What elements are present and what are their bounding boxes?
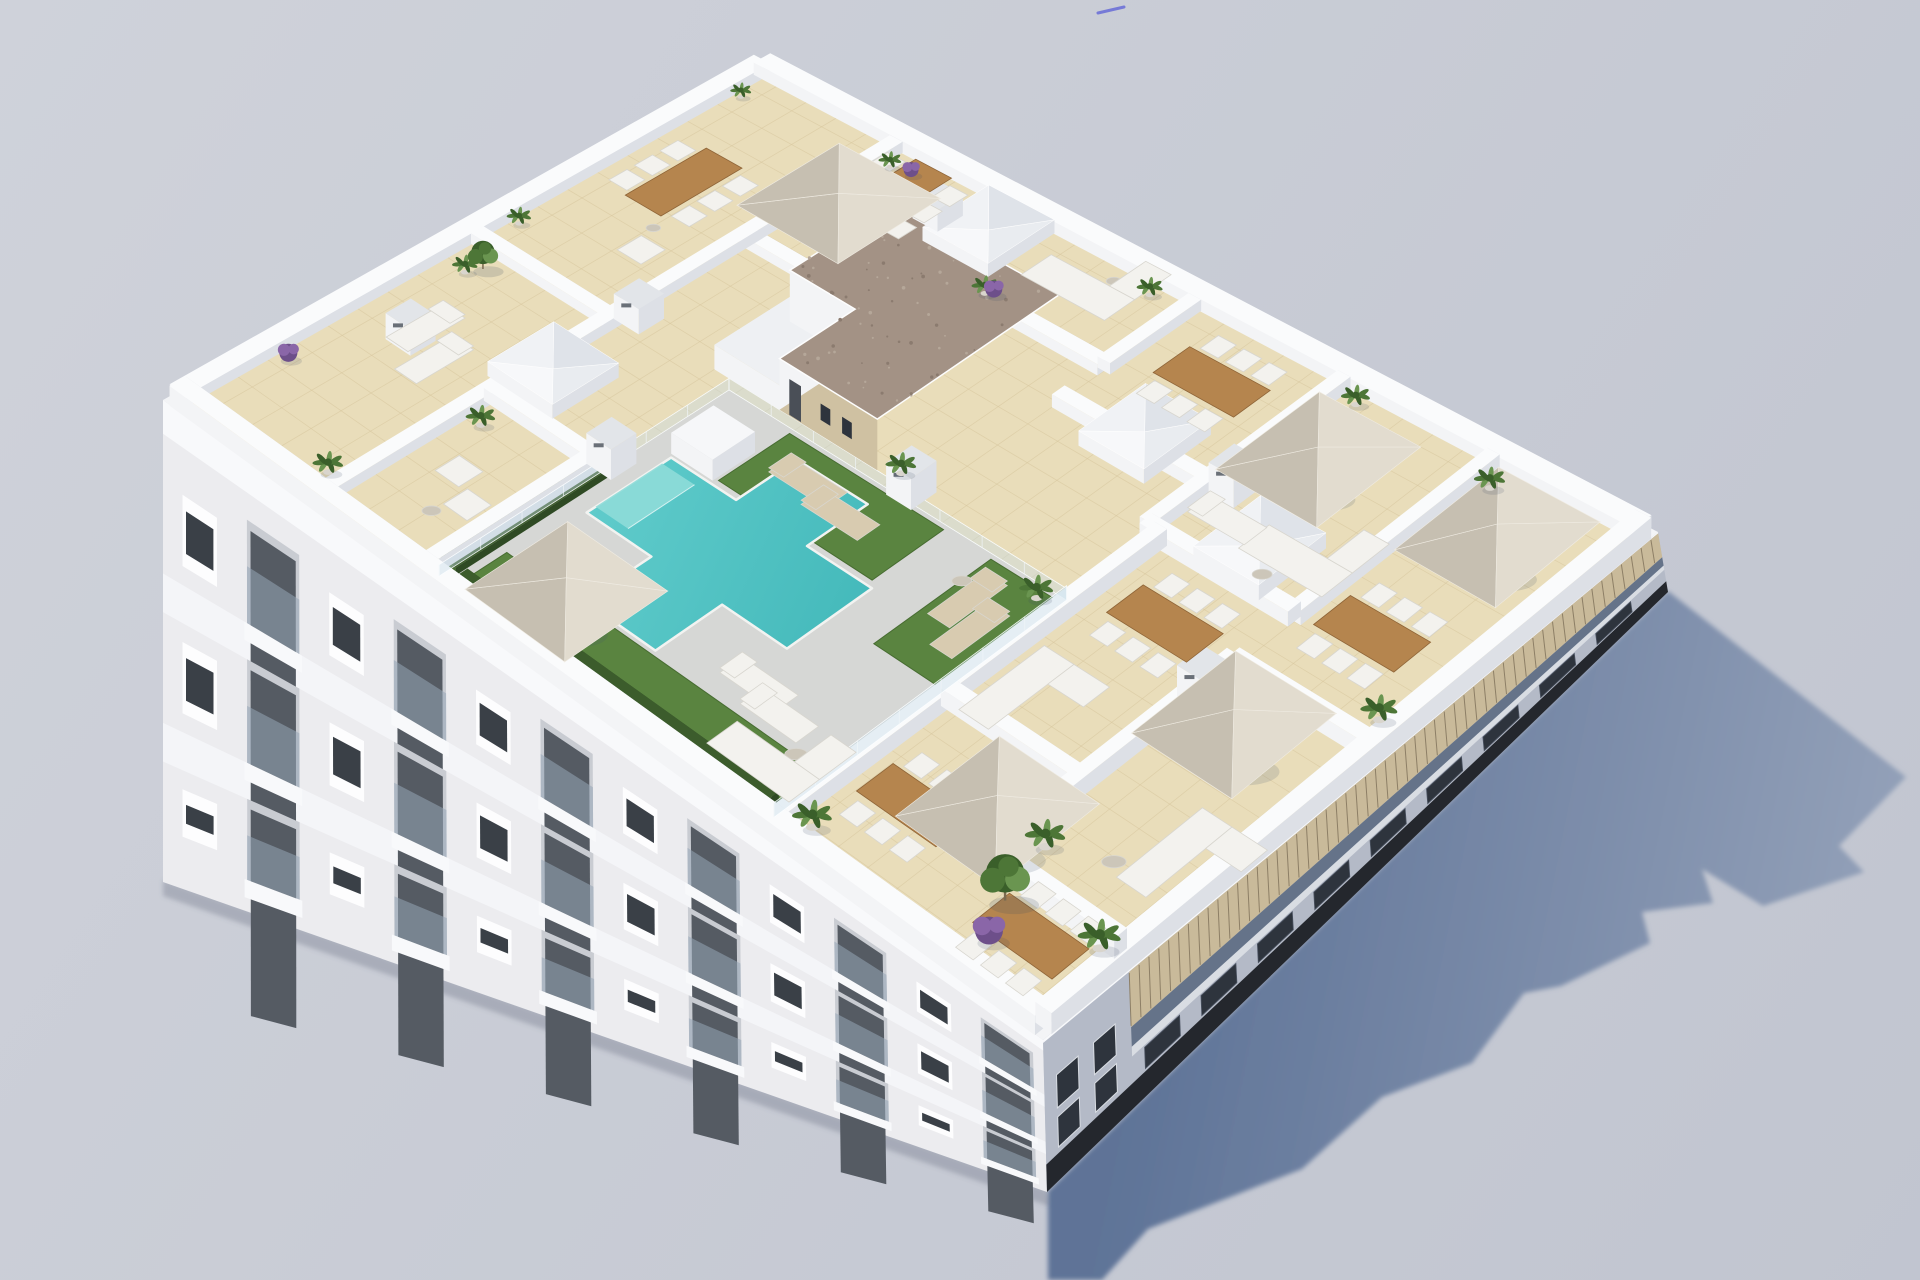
plant-center: [1352, 392, 1359, 399]
gravel-dot: [831, 344, 835, 348]
gravel-dot: [806, 361, 809, 364]
gravel-dot: [868, 289, 870, 291]
gravel-dot: [883, 239, 885, 241]
plant-center: [887, 157, 893, 163]
rooftop-render: [0, 0, 1920, 1280]
chimney-vent: [1184, 675, 1194, 679]
gravel-dot: [876, 276, 878, 278]
bush-blob: [994, 281, 1004, 291]
gravel-dot: [812, 267, 815, 270]
gravel-dot: [935, 323, 938, 326]
gravel-dot: [887, 277, 889, 279]
gravel-dot: [864, 381, 866, 383]
gravel-dot: [928, 246, 932, 250]
plant-center: [477, 412, 484, 419]
gravel-dot: [801, 265, 804, 268]
gravel-dot: [920, 273, 922, 275]
chimney-vent: [393, 323, 403, 327]
bush-blob: [989, 917, 1005, 933]
plant-center: [1041, 829, 1051, 839]
round-table: [1252, 569, 1272, 579]
plant-center: [897, 460, 904, 467]
gravel-dot: [909, 341, 913, 345]
gravel-dot: [863, 387, 865, 389]
plant-center: [1375, 703, 1384, 712]
gravel-dot: [944, 335, 946, 337]
bush-blob: [902, 162, 912, 172]
plant-center: [1486, 474, 1494, 482]
gravel-dot: [888, 367, 890, 369]
gravel-dot: [898, 340, 901, 343]
tree-canopy: [998, 856, 1018, 876]
plant-center: [324, 458, 331, 465]
gravel-dot: [838, 318, 842, 322]
gravel-dot: [886, 335, 888, 337]
gravel-dot: [859, 323, 861, 325]
gravel-dot: [936, 373, 939, 376]
round-table: [422, 506, 441, 516]
gravel-dot: [891, 300, 893, 302]
gravel-dot: [921, 275, 925, 279]
gravel-dot: [999, 275, 1001, 277]
gravel-dot: [803, 353, 806, 356]
gravel-dot: [882, 261, 885, 264]
gravel-dot: [830, 291, 833, 294]
gravel-dot: [845, 296, 848, 299]
gravel-dot: [808, 256, 811, 259]
gravel-dot: [858, 307, 860, 309]
gravel-dot: [938, 347, 941, 350]
gravel-dot: [886, 362, 889, 365]
tree-canopy: [479, 242, 491, 254]
gravel-dot: [896, 399, 898, 401]
gravel-dot: [871, 324, 873, 326]
gravel-dot: [1001, 323, 1004, 326]
gravel-dot: [872, 337, 874, 339]
gravel-dot: [965, 352, 968, 355]
gravel-dot: [973, 349, 975, 351]
plant-center: [738, 88, 743, 93]
plant-center: [1094, 929, 1105, 940]
plant-center: [516, 213, 522, 219]
gravel-dot: [916, 302, 918, 304]
core-door: [789, 379, 801, 422]
plant-center: [462, 261, 468, 267]
gravel-dot: [897, 244, 900, 247]
gravel-dot: [953, 260, 955, 262]
gravel-dot: [881, 392, 884, 395]
gravel-dot: [868, 311, 872, 315]
gravel-dot: [828, 351, 831, 354]
gravel-dot: [811, 280, 813, 282]
plant-center: [808, 809, 818, 819]
tree-shadow: [989, 896, 1039, 914]
gravel-dot: [861, 362, 863, 364]
bush-blob: [288, 344, 299, 355]
gravel-dot: [930, 375, 933, 378]
gravel-dot: [910, 392, 913, 395]
tree-shadow: [473, 266, 503, 277]
gravel-dot: [911, 277, 913, 279]
bush-blob: [911, 162, 920, 171]
gravel-dot: [938, 270, 941, 273]
gravel-dot: [945, 282, 948, 285]
gravel-dot: [833, 351, 836, 354]
gravel-dot: [816, 356, 820, 360]
gravel-dot: [807, 274, 811, 278]
plant-center: [1147, 283, 1153, 289]
gravel-dot: [902, 286, 906, 290]
bush-blob: [973, 917, 992, 936]
render-stage: Aerial isometric 3D rendering of a white…: [0, 0, 1920, 1280]
chimney-vent: [621, 303, 631, 307]
bush-blob: [278, 344, 290, 356]
round-table: [646, 224, 661, 231]
gravel-dot: [847, 382, 850, 385]
bush-blob: [984, 281, 995, 292]
gravel-dot: [1037, 289, 1040, 292]
chimney-vent: [594, 443, 604, 447]
round-table: [1102, 856, 1126, 868]
gravel-dot: [866, 269, 868, 271]
gravel-dot: [868, 262, 870, 264]
plant-center: [1032, 583, 1040, 591]
gravel-dot: [927, 313, 930, 316]
